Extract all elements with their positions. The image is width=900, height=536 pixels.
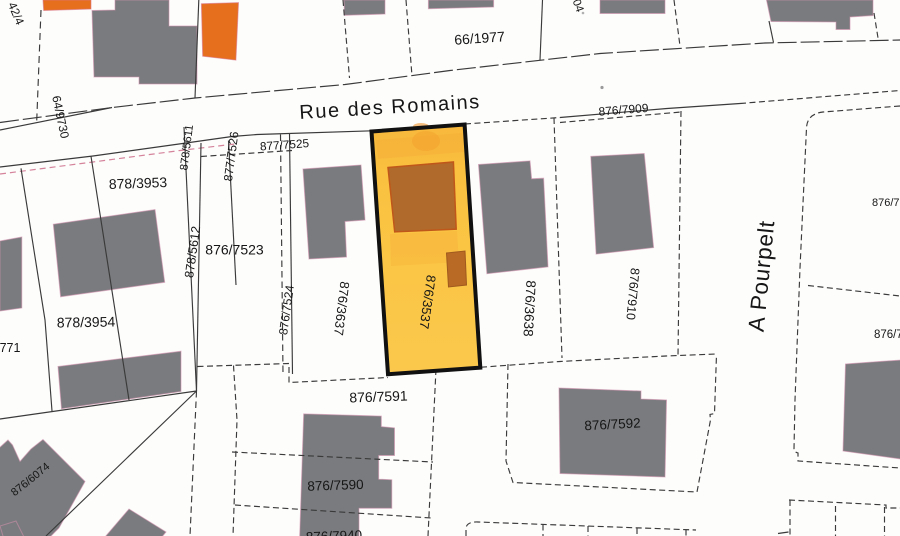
svg-text:876/7590: 876/7590 (307, 477, 364, 494)
svg-text:878/3953: 878/3953 (109, 174, 168, 192)
svg-text:876/7523: 876/7523 (205, 242, 264, 258)
svg-text:771: 771 (0, 341, 20, 355)
svg-text:876/7: 876/7 (872, 197, 900, 209)
svg-text:876/3638: 876/3638 (521, 280, 539, 337)
svg-text:876/7940: 876/7940 (306, 528, 363, 536)
svg-text:878/3954: 878/3954 (57, 313, 116, 330)
svg-text:876/7592: 876/7592 (584, 415, 641, 433)
svg-text:876/7591: 876/7591 (349, 387, 408, 405)
svg-text:876/7: 876/7 (874, 329, 900, 341)
